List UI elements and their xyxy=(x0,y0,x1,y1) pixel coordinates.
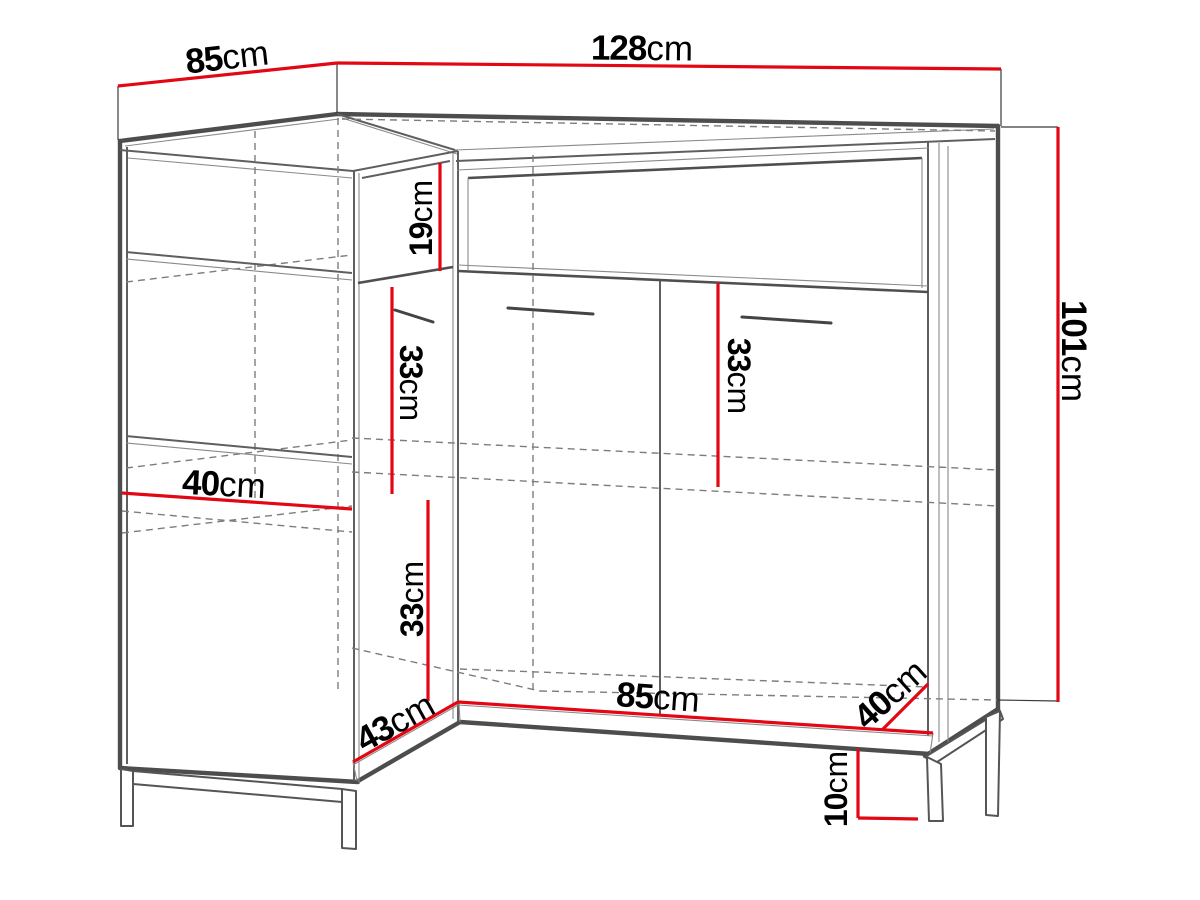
dim-label-leg-height: 10cm xyxy=(818,751,854,827)
plinth-corner-connector xyxy=(459,703,460,722)
right-drawer-top-edge xyxy=(468,158,922,178)
top-surface-front-edge xyxy=(455,129,994,150)
dim-label-front-right-width: 85cm xyxy=(615,675,701,720)
hidden-edges xyxy=(122,118,997,700)
right-door-handle xyxy=(742,317,831,323)
left-frame-front-leg xyxy=(342,789,356,849)
doors-and-drawers xyxy=(358,158,928,714)
top-back-left-edge xyxy=(120,114,337,141)
left-face-top-edge xyxy=(353,151,458,171)
dim-label-shelf-depth: 40cm xyxy=(181,462,267,505)
dim-label-left-door-lower: 33cm xyxy=(394,561,430,637)
left-wing-door-handle xyxy=(395,310,433,322)
dim-label-drawer-height: 19cm xyxy=(403,180,439,256)
right-frame-back-leg xyxy=(986,711,1000,816)
dim-label-height: 101cm xyxy=(1055,300,1094,402)
hidden-shelf-right-top xyxy=(352,438,997,470)
dimension-lines xyxy=(118,63,1058,819)
dim-label-top-depth: 85cm xyxy=(183,33,270,81)
dimension-labels: 85cm 128cm 101cm 19cm 33cm 33cm 40cm 33c… xyxy=(181,28,1093,827)
dim-label-right-door: 33cm xyxy=(721,338,757,414)
dim-label-front-left-width: 43cm xyxy=(349,685,441,760)
left-drawer-top-edge xyxy=(362,161,450,178)
left-panel-shelves xyxy=(126,252,352,464)
dim-label-top-width: 128cm xyxy=(591,28,693,68)
ext-height-bottom xyxy=(997,700,1058,701)
right-frame-front-leg xyxy=(927,757,943,821)
top-corner-joint-inner xyxy=(342,118,457,154)
dim-label-left-door-upper: 33cm xyxy=(393,345,429,421)
furniture-dimension-diagram: 85cm 128cm 101cm 19cm 33cm 33cm 40cm 33c… xyxy=(0,0,1200,900)
hidden-bottom-left xyxy=(352,648,540,691)
hidden-shelf1-back xyxy=(126,255,352,282)
left-frame-back-leg xyxy=(121,769,133,826)
right-drawer-bottom-edge xyxy=(458,271,928,292)
top-slab-inner-left xyxy=(125,119,339,146)
dim-tick-leg-10 xyxy=(858,818,918,819)
right-drawer-bottom-inner xyxy=(458,265,928,286)
hidden-shelf3-front xyxy=(122,511,352,532)
diagram-canvas: 85cm 128cm 101cm 19cm 33cm 33cm 40cm 33c… xyxy=(0,0,1200,900)
top-back-right-edge xyxy=(337,114,998,126)
left-door-handle xyxy=(508,308,593,314)
hidden-shelf-right-bottom xyxy=(352,472,997,506)
